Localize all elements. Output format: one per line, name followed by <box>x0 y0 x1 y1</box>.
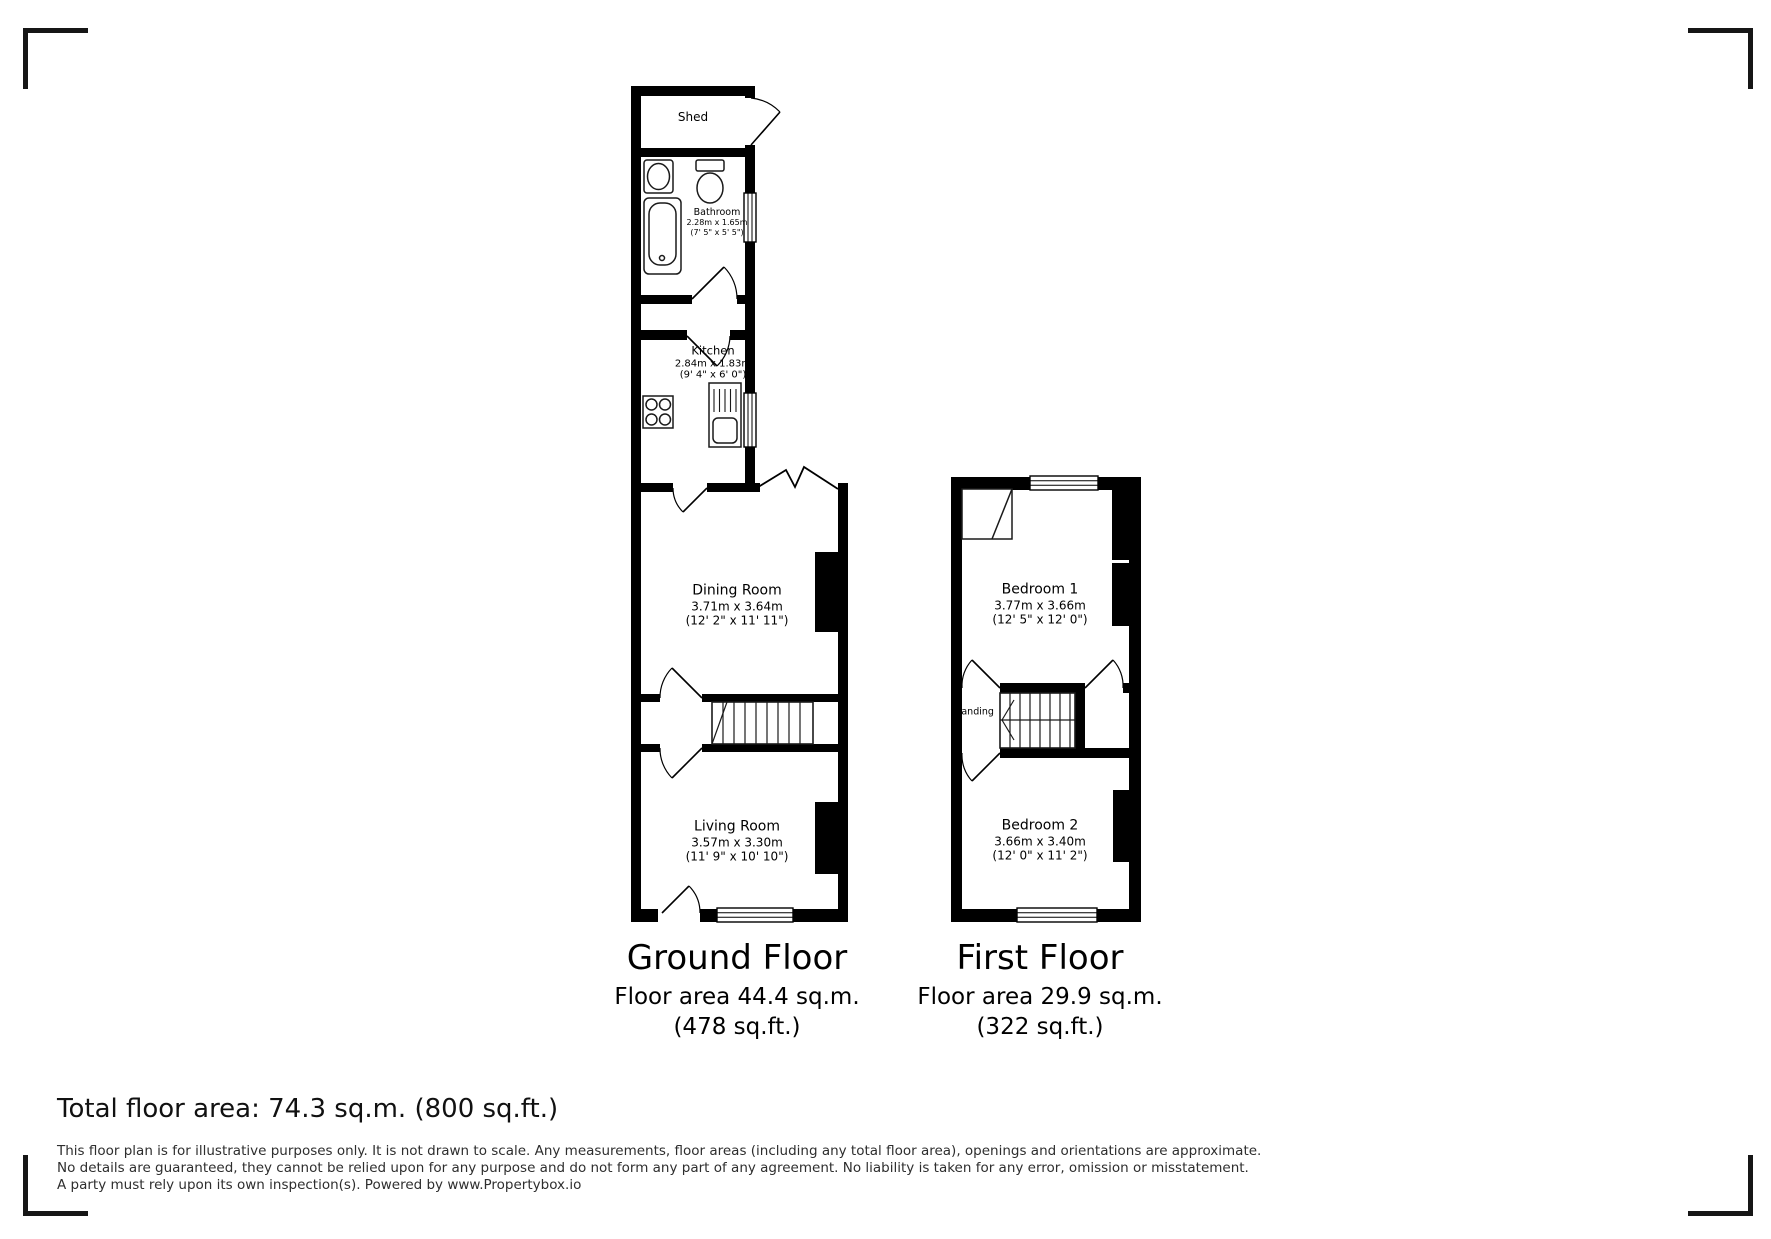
floorplan-graphics <box>0 0 1771 1239</box>
bedroom1-window <box>1030 476 1098 490</box>
floorplan-page: Shed Bathroom 2.28m x 1.65m (7' 5" x 5' … <box>0 0 1771 1239</box>
ground-floor-title: Ground Floor <box>627 938 847 978</box>
bedroom1-wardrobe <box>962 489 1012 539</box>
room-dims-metric: 2.28m x 1.65m <box>686 218 747 227</box>
kitchen-window <box>744 393 756 447</box>
room-name: Shed <box>678 110 708 124</box>
room-name: Landing <box>956 706 994 717</box>
room-dims-imperial: (9' 4" x 6' 0") <box>675 370 751 382</box>
bedroom1-landing-door <box>962 660 1000 688</box>
hob-fixture <box>643 396 673 428</box>
total-floor-area: Total floor area: 74.3 sq.m. (800 sq.ft.… <box>57 1094 558 1124</box>
first-floor-area-imperial: (322 sq.ft.) <box>976 1014 1103 1040</box>
room-dims-imperial: (12' 5" x 12' 0") <box>992 612 1087 626</box>
front-door <box>662 886 700 913</box>
room-dims-metric: 3.66m x 3.40m <box>992 834 1087 848</box>
room-name: Bedroom 2 <box>992 818 1087 835</box>
shed-door <box>751 98 780 145</box>
sink-unit-fixture <box>709 383 741 447</box>
kitchen-label: Kitchen 2.84m x 1.83m (9' 4" x 6' 0") <box>675 344 751 381</box>
kitchen-dining-door <box>673 488 707 512</box>
room-dims-imperial: (11' 9" x 10' 10") <box>686 849 789 863</box>
dining-room-label: Dining Room 3.71m x 3.64m (12' 2" x 11' … <box>686 583 789 628</box>
room-dims-metric: 3.71m x 3.64m <box>686 599 789 613</box>
room-name: Bedroom 1 <box>992 582 1087 599</box>
ground-floor-area-metric: Floor area 44.4 sq.m. <box>614 984 859 1010</box>
living-room-door <box>660 748 702 778</box>
room-dims-imperial: (12' 0" x 11' 2") <box>992 848 1087 862</box>
room-name: Kitchen <box>675 344 751 358</box>
room-dims-metric: 3.77m x 3.66m <box>992 598 1087 612</box>
dining-room-door <box>660 668 702 698</box>
shed-label: Shed <box>678 110 708 124</box>
room-name: Living Room <box>686 819 789 836</box>
bedroom2-label: Bedroom 2 3.66m x 3.40m (12' 0" x 11' 2"… <box>992 818 1087 863</box>
living-room-label: Living Room 3.57m x 3.30m (11' 9" x 10' … <box>686 819 789 864</box>
first-floor-area-metric: Floor area 29.9 sq.m. <box>917 984 1162 1010</box>
open-edge-squiggle <box>755 467 838 489</box>
room-dims-metric: 2.84m x 1.83m <box>675 358 751 370</box>
landing-label: Landing <box>956 706 994 717</box>
bedroom2-landing-door <box>962 753 1000 781</box>
bedroom2-window <box>1017 908 1097 922</box>
bathtub-fixture <box>644 198 681 274</box>
room-name: Bathroom <box>686 207 747 218</box>
bathroom-label: Bathroom 2.28m x 1.65m (7' 5" x 5' 5") <box>686 207 747 237</box>
room-dims-metric: 3.57m x 3.30m <box>686 835 789 849</box>
toilet-fixture <box>696 160 724 203</box>
ground-floor-stairs <box>712 702 813 744</box>
kitchen-fixtures <box>643 383 741 447</box>
ground-floor-area-imperial: (478 sq.ft.) <box>673 1014 800 1040</box>
room-name: Dining Room <box>686 583 789 600</box>
bathroom-door <box>692 267 737 299</box>
disclaimer-text: This floor plan is for illustrative purp… <box>57 1143 1262 1194</box>
room-dims-imperial: (7' 5" x 5' 5") <box>686 228 747 237</box>
basin-fixture <box>644 160 673 193</box>
living-room-window <box>717 908 793 922</box>
bedroom1-label: Bedroom 1 3.77m x 3.66m (12' 5" x 12' 0"… <box>992 582 1087 627</box>
first-floor-stairs <box>1000 693 1075 748</box>
first-floor-title: First Floor <box>957 938 1124 978</box>
bedroom1-stairs-door <box>1085 660 1123 688</box>
room-dims-imperial: (12' 2" x 11' 11") <box>686 613 789 627</box>
